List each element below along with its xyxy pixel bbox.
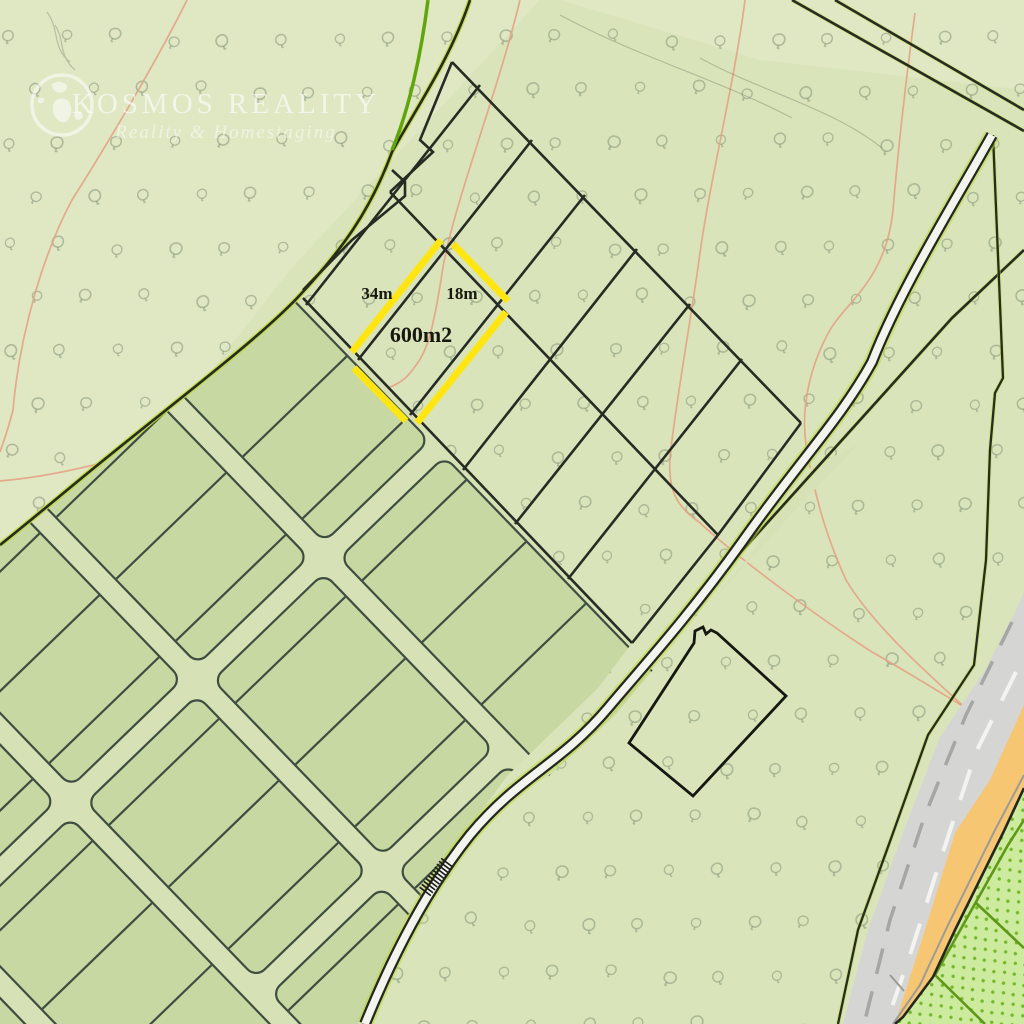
side-long-label: 34m bbox=[361, 284, 392, 303]
parcel-area-label: 600m2 bbox=[390, 322, 452, 347]
watermark-subtitle: Reality & Homestaging bbox=[114, 122, 336, 143]
map-viewport: 34m 18m 600m2 KOSMOS REALITY Reality & H… bbox=[0, 0, 1024, 1024]
cadastral-map: 34m 18m 600m2 KOSMOS REALITY Reality & H… bbox=[0, 0, 1024, 1024]
side-short-label: 18m bbox=[446, 284, 477, 303]
watermark-title: KOSMOS REALITY bbox=[72, 88, 380, 120]
